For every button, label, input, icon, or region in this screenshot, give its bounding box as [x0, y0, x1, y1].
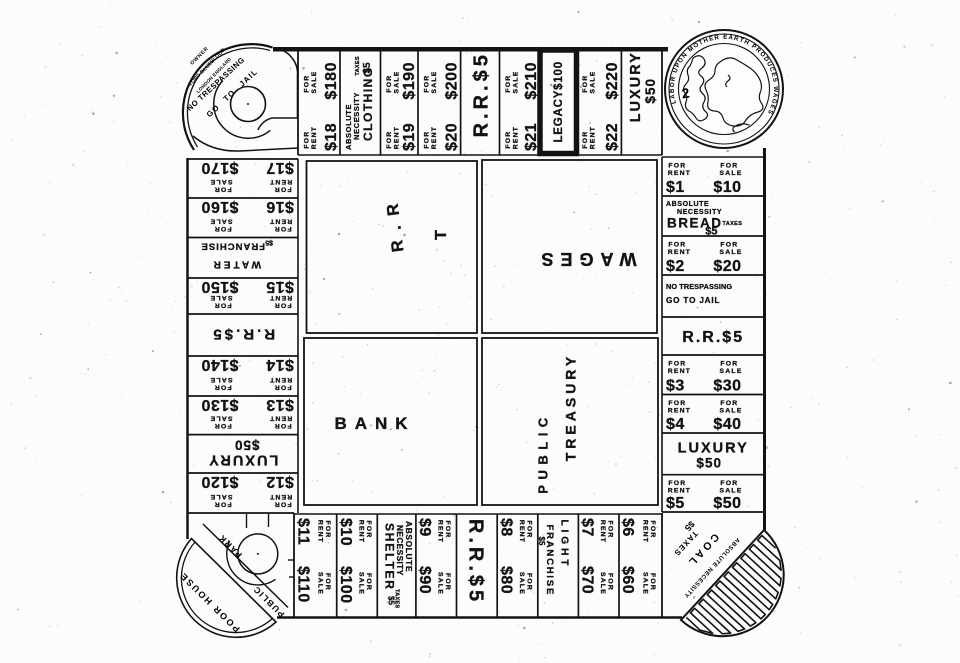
svg-text:$6: $6 [619, 518, 636, 537]
svg-text:FOR: FOR [214, 186, 232, 193]
svg-text:ABSOLUTE: ABSOLUTE [666, 201, 709, 208]
svg-text:RENT: RENT [590, 126, 597, 149]
svg-text:FOR: FOR [386, 75, 393, 93]
svg-text:$190: $190 [401, 62, 418, 100]
svg-text:SALE: SALE [210, 493, 233, 500]
svg-text:$150: $150 [201, 278, 239, 295]
svg-text:RENT: RENT [269, 218, 292, 225]
svg-text:$10: $10 [337, 518, 354, 546]
svg-text:$4: $4 [666, 416, 685, 433]
svg-text:FOR: FOR [505, 131, 512, 149]
svg-text:$20: $20 [713, 258, 741, 275]
svg-text:$40: $40 [713, 416, 741, 433]
svg-text:LUXURY: LUXURY [207, 451, 278, 467]
svg-text:$5: $5 [387, 596, 396, 605]
svg-text:$20: $20 [443, 123, 460, 151]
svg-text:TAXES: TAXES [355, 56, 361, 75]
svg-text:RENT: RENT [599, 520, 606, 543]
svg-text:SALE: SALE [437, 572, 444, 595]
svg-text:FRANCHISE: FRANCHISE [544, 525, 555, 597]
svg-text:FOR: FOR [214, 422, 232, 429]
svg-text:GO TO JAIL: GO TO JAIL [666, 296, 720, 305]
svg-text:FOR: FOR [720, 163, 738, 170]
svg-text:$220: $220 [604, 62, 621, 100]
svg-text:SALE: SALE [431, 71, 438, 94]
svg-text:RENT: RENT [668, 408, 691, 415]
svg-text:SALE: SALE [317, 572, 324, 595]
svg-text:RENT: RENT [668, 249, 691, 256]
svg-text:SALE: SALE [720, 170, 743, 177]
svg-text:WAGES: WAGES [534, 249, 636, 269]
svg-text:FOR: FOR [720, 400, 738, 407]
svg-text:FOR: FOR [274, 384, 292, 391]
svg-text:$3: $3 [666, 377, 685, 394]
svg-text:FOR: FOR [649, 521, 656, 539]
svg-text:$210: $210 [523, 62, 540, 100]
svg-text:RENT: RENT [642, 520, 649, 543]
svg-text:FOR: FOR [720, 361, 738, 368]
svg-text:SALE: SALE [720, 408, 743, 415]
svg-text:LIGHT: LIGHT [558, 520, 569, 570]
svg-text:$13: $13 [266, 396, 294, 413]
svg-text:$160: $160 [201, 198, 239, 215]
svg-text:FOR: FOR [424, 75, 431, 93]
svg-text:T: T [433, 230, 450, 240]
svg-text:$110: $110 [294, 566, 311, 603]
svg-text:BANK: BANK [334, 414, 415, 433]
svg-text:FOR: FOR [720, 242, 738, 249]
svg-text:R.R.$5: R.R.$5 [470, 51, 492, 137]
svg-text:$7: $7 [579, 518, 596, 537]
svg-text:$21: $21 [523, 123, 540, 151]
svg-text:SALE: SALE [210, 376, 233, 383]
svg-text:FOR: FOR [274, 186, 292, 193]
svg-text:$2: $2 [666, 258, 685, 275]
svg-text:SALE: SALE [720, 488, 743, 495]
svg-text:$30: $30 [713, 377, 741, 394]
svg-text:RENT: RENT [269, 493, 292, 500]
svg-text:SALE: SALE [210, 178, 233, 185]
svg-text:$9: $9 [416, 518, 433, 537]
svg-text:SALE: SALE [590, 71, 597, 94]
svg-text:FOR: FOR [365, 573, 372, 591]
svg-text:FOR: FOR [444, 521, 451, 539]
svg-text:$50: $50 [643, 78, 658, 104]
svg-text:$90: $90 [416, 566, 433, 594]
svg-text:FOR: FOR [607, 573, 614, 591]
svg-text:$11: $11 [294, 518, 311, 545]
svg-text:R.R.$5: R.R.$5 [682, 329, 744, 346]
svg-text:FOR: FOR [668, 242, 686, 249]
svg-text:RENT: RENT [513, 126, 520, 149]
svg-text:SALE: SALE [210, 415, 233, 422]
svg-text:RENT: RENT [431, 126, 438, 149]
svg-text:FOR: FOR [274, 422, 292, 429]
svg-text:RENT: RENT [357, 520, 364, 543]
svg-text:FOR: FOR [582, 75, 589, 93]
svg-text:WATER: WATER [211, 259, 261, 270]
svg-text:FOR: FOR [649, 573, 656, 591]
svg-text:$100: $100 [337, 566, 354, 604]
svg-text:SALE: SALE [357, 572, 364, 595]
svg-text:$60: $60 [619, 566, 636, 594]
svg-text:TREASURY: TREASURY [563, 353, 579, 462]
svg-text:FOR: FOR [720, 480, 738, 487]
svg-text:$15: $15 [266, 278, 294, 295]
svg-text:$50: $50 [696, 455, 722, 470]
svg-text:RENT: RENT [668, 170, 691, 177]
svg-text:FOR: FOR [525, 521, 532, 539]
svg-text:$10: $10 [713, 179, 741, 196]
svg-text:TAXES: TAXES [722, 221, 742, 227]
svg-text:$12: $12 [266, 473, 294, 490]
svg-text:FOR: FOR [505, 75, 512, 93]
svg-text:FOR: FOR [304, 131, 311, 149]
svg-text:$80: $80 [497, 566, 514, 594]
svg-text:LEGACY$100: LEGACY$100 [553, 61, 565, 143]
svg-text:SALE: SALE [311, 71, 318, 94]
svg-text:$170: $170 [201, 159, 239, 176]
svg-text:$120: $120 [201, 473, 239, 490]
svg-text:R.R.$5: R.R.$5 [210, 326, 275, 343]
svg-text:$8: $8 [497, 518, 514, 537]
svg-text:NECESSITY: NECESSITY [352, 92, 361, 140]
svg-text:FOR: FOR [668, 400, 686, 407]
svg-text:SHELTER: SHELTER [383, 523, 397, 591]
svg-text:$17: $17 [266, 159, 294, 176]
svg-text:R.R.$5: R.R.$5 [465, 519, 487, 605]
svg-text:RENT: RENT [311, 126, 318, 149]
svg-text:FOR: FOR [582, 131, 589, 149]
svg-text:$140: $140 [201, 356, 239, 373]
svg-text:FOR: FOR [324, 521, 331, 539]
svg-text:$200: $200 [443, 62, 460, 100]
svg-text:RENT: RENT [518, 520, 525, 543]
svg-text:$18: $18 [323, 123, 340, 151]
svg-text:FOR: FOR [274, 501, 292, 508]
svg-text:RENT: RENT [393, 126, 400, 149]
svg-text:FOR: FOR [214, 225, 232, 232]
svg-text:$130: $130 [201, 396, 239, 413]
svg-text:SALE: SALE [518, 572, 525, 595]
svg-text:FOR: FOR [668, 361, 686, 368]
svg-text:RENT: RENT [668, 368, 691, 375]
svg-text:FOR: FOR [607, 521, 614, 539]
svg-text:CLOTHING: CLOTHING [361, 66, 375, 141]
svg-text:FOR: FOR [424, 131, 431, 149]
svg-text:SALE: SALE [393, 71, 400, 94]
svg-text:SALE: SALE [720, 249, 743, 256]
svg-text:SALE: SALE [720, 368, 743, 375]
svg-text:RENT: RENT [269, 376, 292, 383]
svg-text:$5: $5 [666, 495, 685, 512]
svg-text:LUXURY: LUXURY [678, 440, 749, 456]
svg-text:FOR: FOR [274, 302, 292, 309]
svg-text:$180: $180 [323, 62, 340, 100]
svg-text:FRANCHISE: FRANCHISE [201, 241, 265, 252]
svg-text:RENT: RENT [269, 178, 292, 185]
svg-text:$19: $19 [401, 123, 418, 151]
svg-text:SALE: SALE [513, 71, 520, 94]
svg-text:LUXURY: LUXURY [628, 51, 644, 122]
svg-text:$14: $14 [266, 356, 294, 373]
svg-text:FOR: FOR [304, 75, 311, 93]
svg-text:RENT: RENT [668, 488, 691, 495]
svg-text:FOR: FOR [525, 573, 532, 591]
svg-text:RENT: RENT [317, 520, 324, 543]
svg-text:$70: $70 [579, 566, 596, 594]
svg-text:PUBLIC: PUBLIC [536, 412, 551, 493]
svg-text:FOR: FOR [214, 501, 232, 508]
svg-text:FOR: FOR [668, 163, 686, 170]
svg-text:$5: $5 [705, 226, 717, 238]
svg-text:$5: $5 [537, 537, 546, 546]
svg-text:FOR: FOR [444, 573, 451, 591]
svg-text:FOR: FOR [214, 302, 232, 309]
svg-text:FOR: FOR [365, 521, 372, 539]
svg-text:FOR: FOR [324, 573, 331, 591]
svg-text:$50: $50 [713, 495, 741, 512]
svg-text:$5: $5 [265, 239, 273, 246]
svg-text:FOR: FOR [274, 225, 292, 232]
svg-text:$16: $16 [266, 198, 294, 215]
svg-text:FOR: FOR [386, 131, 393, 149]
svg-text:SALE: SALE [599, 572, 606, 595]
svg-text:NO TRESPASSING: NO TRESPASSING [666, 282, 732, 291]
svg-text:FOR: FOR [214, 384, 232, 391]
svg-text:SALE: SALE [642, 572, 649, 595]
svg-text:$5: $5 [362, 62, 373, 74]
svg-text:SALE: SALE [210, 218, 233, 225]
svg-text:FOR: FOR [668, 480, 686, 487]
svg-text:$50: $50 [234, 437, 260, 452]
svg-text:$22: $22 [604, 123, 621, 151]
svg-text:RENT: RENT [437, 520, 444, 543]
svg-text:RENT: RENT [269, 415, 292, 422]
svg-text:$1: $1 [666, 179, 685, 196]
